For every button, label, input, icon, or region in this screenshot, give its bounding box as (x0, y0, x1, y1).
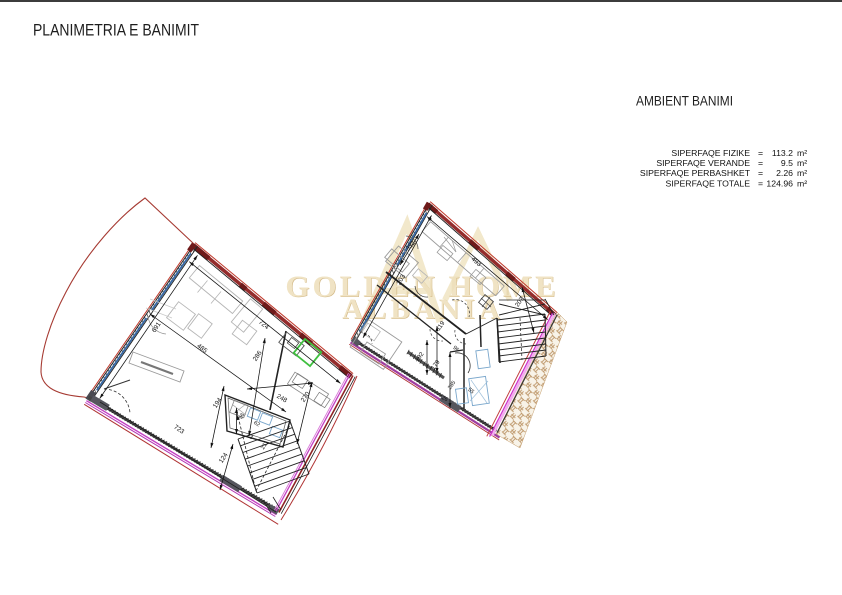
svg-text:SIPERFAQE VERANDE: SIPERFAQE VERANDE (656, 158, 750, 168)
svg-text:SIPERFAQE TOTALE: SIPERFAQE TOTALE (666, 178, 751, 188)
svg-text:=: = (758, 178, 763, 188)
svg-text:=: = (758, 168, 763, 178)
svg-text:113.2: 113.2 (772, 148, 793, 158)
svg-text:m²: m² (797, 158, 807, 168)
svg-text:PLANIMETRIA E BANIMIT: PLANIMETRIA E BANIMIT (33, 22, 199, 40)
svg-text:=: = (758, 148, 763, 158)
svg-text:m²: m² (797, 178, 807, 188)
svg-text:AMBIENT BANIMI: AMBIENT BANIMI (636, 93, 733, 109)
svg-text:m²: m² (797, 148, 807, 158)
svg-text:=: = (758, 158, 763, 168)
svg-text:9.5: 9.5 (781, 158, 793, 168)
svg-text:2.26: 2.26 (776, 168, 793, 178)
svg-text:SIPERFAQE PERBASHKET: SIPERFAQE PERBASHKET (640, 168, 751, 178)
svg-text:m²: m² (797, 168, 807, 178)
svg-text:SIPERFAQE FIZIKE: SIPERFAQE FIZIKE (671, 148, 750, 158)
svg-text:124.96: 124.96 (766, 178, 793, 188)
